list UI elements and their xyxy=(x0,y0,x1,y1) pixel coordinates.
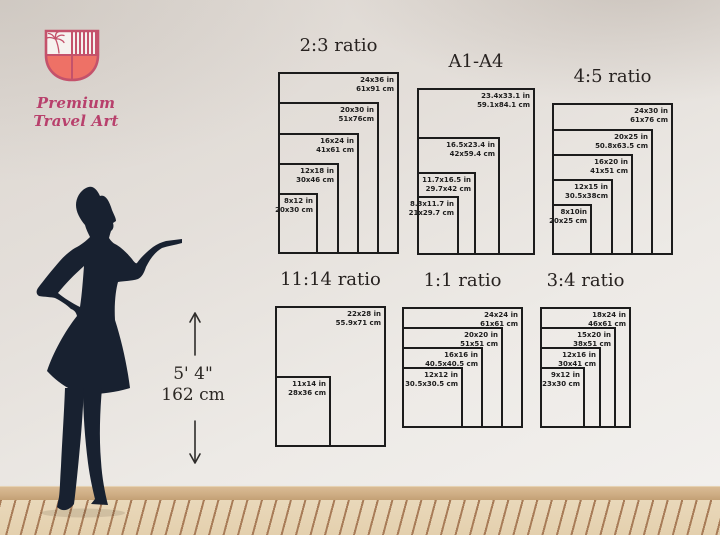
chart-box-area: 23.4x33.1 in59.1x84.1 cm16.5x23.4 in42x5… xyxy=(417,88,535,255)
chart-title: 11:14 ratio xyxy=(280,267,381,293)
size-box-8x12: 8x12 in20x30 cm xyxy=(278,193,318,254)
size-label: 12x16 in30x41 cm xyxy=(558,351,596,369)
chart-box-area: 22x28 in55.9x71 cm11x14 in28x36 cm xyxy=(275,306,386,447)
size-label: 23.4x33.1 in59.1x84.1 cm xyxy=(477,92,530,110)
shield-palm-crest-icon xyxy=(43,29,101,84)
size-label: 20x25 in50.8x63.5 cm xyxy=(595,133,648,151)
size-box-9x12: 9x12 in23x30 cm xyxy=(540,367,585,428)
size-label: 11.7x16.5 in29.7x42 cm xyxy=(422,176,471,194)
size-label: 22x28 in55.9x71 cm xyxy=(336,310,381,328)
size-box-8.3x11.7: 8.3x11.7 in21x29.7 cm xyxy=(417,196,459,255)
size-label: 20x20 in51x51 cm xyxy=(460,331,498,349)
chart-a1-a4: A1-A423.4x33.1 in59.1x84.1 cm16.5x23.4 i… xyxy=(417,49,535,255)
size-label: 24x24 in61x61 cm xyxy=(480,311,518,329)
height-label: 5' 4" 162 cm xyxy=(153,364,233,406)
size-label: 24x30 in61x76 cm xyxy=(630,107,668,125)
height-imperial: 5' 4" xyxy=(153,364,233,385)
size-label: 16x24 in41x61 cm xyxy=(316,137,354,155)
height-metric: 162 cm xyxy=(153,385,233,406)
chart-ratio-3-4: 3:4 ratio18x24 in46x61 cm15x20 in38x51 c… xyxy=(540,268,631,428)
size-label: 8.3x11.7 in21x29.7 cm xyxy=(409,200,454,218)
size-label: 18x24 in46x61 cm xyxy=(588,311,626,329)
size-label: 16.5x23.4 in42x59.4 cm xyxy=(446,141,495,159)
size-label: 8x12 in20x30 cm xyxy=(275,197,313,215)
size-label: 11x14 in28x36 cm xyxy=(288,380,326,398)
chart-title: 4:5 ratio xyxy=(574,64,652,90)
size-label: 16x16 in40.5x40.5 cm xyxy=(425,351,478,369)
chart-ratio-11-14: 11:14 ratio22x28 in55.9x71 cm11x14 in28x… xyxy=(275,267,386,447)
chart-title: 2:3 ratio xyxy=(300,33,378,59)
size-label: 12x12 in30.5x30.5 cm xyxy=(405,371,458,389)
chart-title: 1:1 ratio xyxy=(424,268,502,294)
size-label: 12x15 in30.5x38cm xyxy=(565,183,608,201)
size-label: 24x36 in61x91 cm xyxy=(356,76,394,94)
chart-title: 3:4 ratio xyxy=(547,268,625,294)
size-label: 12x18 in30x46 cm xyxy=(296,167,334,185)
size-label: 15x20 in38x51 cm xyxy=(573,331,611,349)
woman-silhouette xyxy=(25,183,195,518)
size-label: 20x30 in51x76cm xyxy=(339,106,374,124)
size-box-11x14: 11x14 in28x36 cm xyxy=(275,376,331,447)
size-box-8x10: 8x10in20x25 cm xyxy=(552,204,592,255)
chart-title: A1-A4 xyxy=(449,49,504,75)
size-label: 9x12 in23x30 cm xyxy=(542,371,580,389)
chart-box-area: 24x24 in61x61 cm20x20 in51x51 cm16x16 in… xyxy=(402,307,523,428)
size-label: 16x20 in41x51 cm xyxy=(590,158,628,176)
brand-name: Premium Travel Art xyxy=(12,94,140,130)
chart-ratio-4-5: 4:5 ratio24x30 in61x76 cm20x25 in50.8x63… xyxy=(552,64,673,255)
size-box-12x12: 12x12 in30.5x30.5 cm xyxy=(402,367,463,428)
size-label: 8x10in20x25 cm xyxy=(549,208,587,226)
size-guide-poster: Premium Travel Art 2:3 ratio24x36 in61x9… xyxy=(0,0,720,535)
chart-ratio-1-1: 1:1 ratio24x24 in61x61 cm20x20 in51x51 c… xyxy=(402,268,523,428)
chart-ratio-2-3: 2:3 ratio24x36 in61x91 cm20x30 in51x76cm… xyxy=(278,33,399,254)
chart-box-area: 24x30 in61x76 cm20x25 in50.8x63.5 cm16x2… xyxy=(552,103,673,255)
chart-box-area: 18x24 in46x61 cm15x20 in38x51 cm12x16 in… xyxy=(540,307,631,428)
chart-box-area: 24x36 in61x91 cm20x30 in51x76cm16x24 in4… xyxy=(278,72,399,254)
